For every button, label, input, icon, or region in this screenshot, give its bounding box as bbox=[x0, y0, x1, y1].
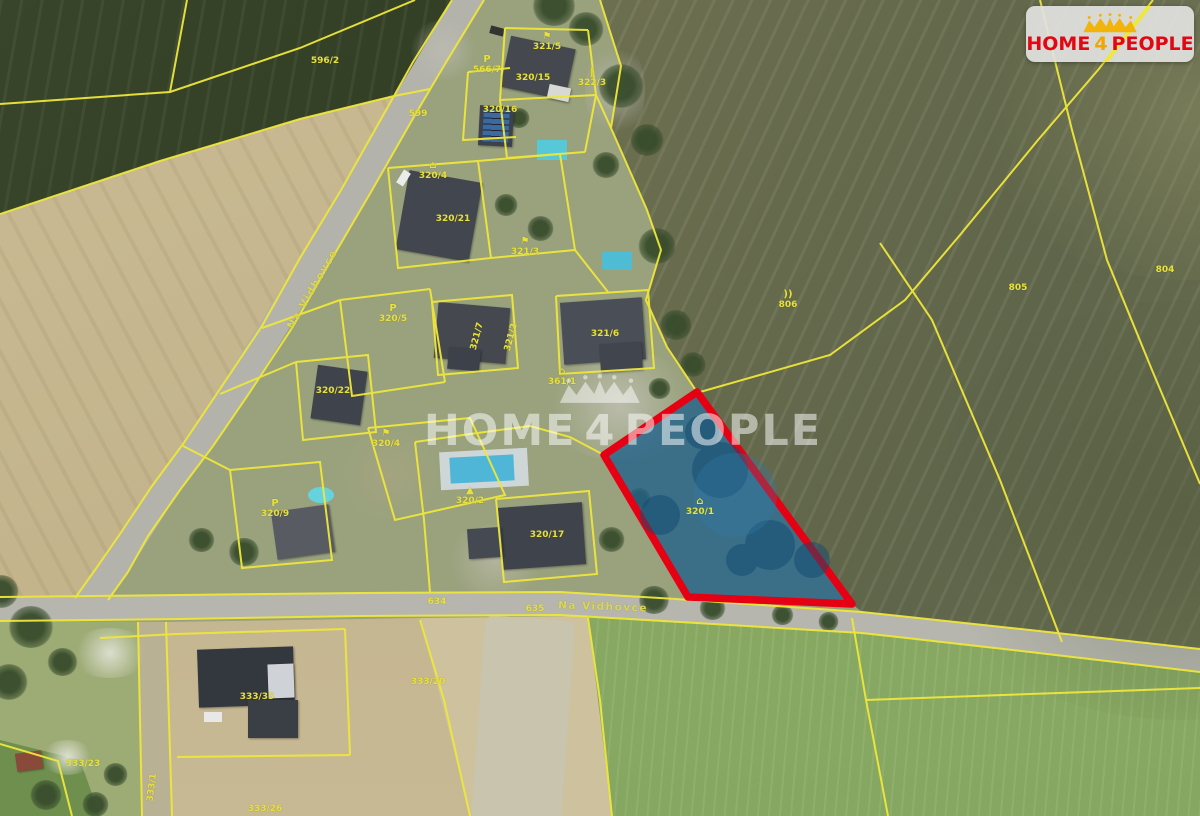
parcel-symbol: P bbox=[271, 499, 278, 509]
parcel-number-label: ⌂320/4 bbox=[419, 161, 447, 181]
parcel-number-label: 804 bbox=[1156, 266, 1175, 275]
parcel-number-label: 333/23 bbox=[66, 760, 101, 769]
parcel-number-label: 321/7 bbox=[470, 322, 486, 352]
parcel-number-label: 320/22 bbox=[316, 387, 351, 396]
parcel-symbol: ⚑ bbox=[521, 237, 530, 247]
parcel-number-label: 320/16 bbox=[483, 106, 518, 115]
parcel-number-label: 805 bbox=[1009, 284, 1028, 293]
parcel-symbol: ▲ bbox=[466, 486, 474, 496]
parcel-number-label: 596/2 bbox=[311, 57, 339, 66]
parcel-number-label: ⚑321/3 bbox=[511, 237, 539, 257]
parcel-symbol: ⚑ bbox=[543, 32, 552, 42]
parcel-number-label: P566/7 bbox=[473, 55, 501, 75]
parcel-number-label: P320/5 bbox=[379, 304, 407, 324]
parcel-number-label: 599 bbox=[409, 110, 428, 119]
parcel-number-label: P320/9 bbox=[261, 499, 289, 519]
logo-people: PEOPLE bbox=[1112, 33, 1194, 55]
parcel-symbol: P bbox=[389, 304, 396, 314]
parcel-number-label: ⌂320/1 bbox=[686, 497, 714, 517]
parcel-number-label: 321/2 bbox=[504, 323, 520, 353]
parcel-number-label: 320/15 bbox=[516, 74, 551, 83]
logo-text: HOME4PEOPLE bbox=[1026, 33, 1193, 55]
map-canvas: 596/2599⚑321/5320/15‖322/3320/16P566/7⌂3… bbox=[0, 0, 1200, 816]
parcel-symbol: ⌂ bbox=[558, 367, 565, 377]
road-name-label: Na Vidhovce bbox=[286, 248, 341, 331]
parcel-number-label: 320/21 bbox=[436, 215, 471, 224]
parcel-number-label: 635 bbox=[526, 605, 545, 614]
parcel-symbol: P bbox=[483, 55, 490, 65]
road-name-label: Na Vidhovce bbox=[558, 600, 648, 614]
parcel-number-label: 333/35 bbox=[240, 693, 275, 702]
home4people-logo: HOME4PEOPLE bbox=[1026, 6, 1194, 62]
parcel-symbol: ⌂ bbox=[696, 497, 703, 507]
parcel-symbol: ‖ bbox=[590, 68, 595, 78]
parcel-symbol: ⚑ bbox=[382, 429, 391, 439]
parcel-symbol: ⌂ bbox=[429, 161, 436, 171]
parcel-number-label: 333/20 bbox=[411, 678, 446, 687]
parcel-number-label: 333/26 bbox=[248, 805, 283, 814]
parcel-number-label: ⌂361/1 bbox=[548, 367, 576, 387]
parcel-symbol: )) bbox=[783, 290, 792, 300]
parcel-number-label: ⚑321/5 bbox=[533, 32, 561, 52]
parcel-number-label: 333/1 bbox=[147, 773, 160, 802]
parcel-number-label: ))806 bbox=[779, 290, 798, 310]
labels-layer: 596/2599⚑321/5320/15‖322/3320/16P566/7⌂3… bbox=[0, 0, 1200, 816]
parcel-number-label: 321/6 bbox=[591, 330, 619, 339]
parcel-number-label: ‖322/3 bbox=[578, 68, 606, 88]
parcel-number-label: ⚑320/4 bbox=[372, 429, 400, 449]
crown-icon bbox=[1078, 13, 1142, 33]
logo-home: HOME bbox=[1026, 33, 1090, 55]
logo-4: 4 bbox=[1090, 33, 1111, 55]
parcel-number-label: 320/17 bbox=[530, 531, 565, 540]
parcel-number-label: 634 bbox=[428, 598, 447, 607]
parcel-number-label: ▲320/2 bbox=[456, 486, 484, 506]
